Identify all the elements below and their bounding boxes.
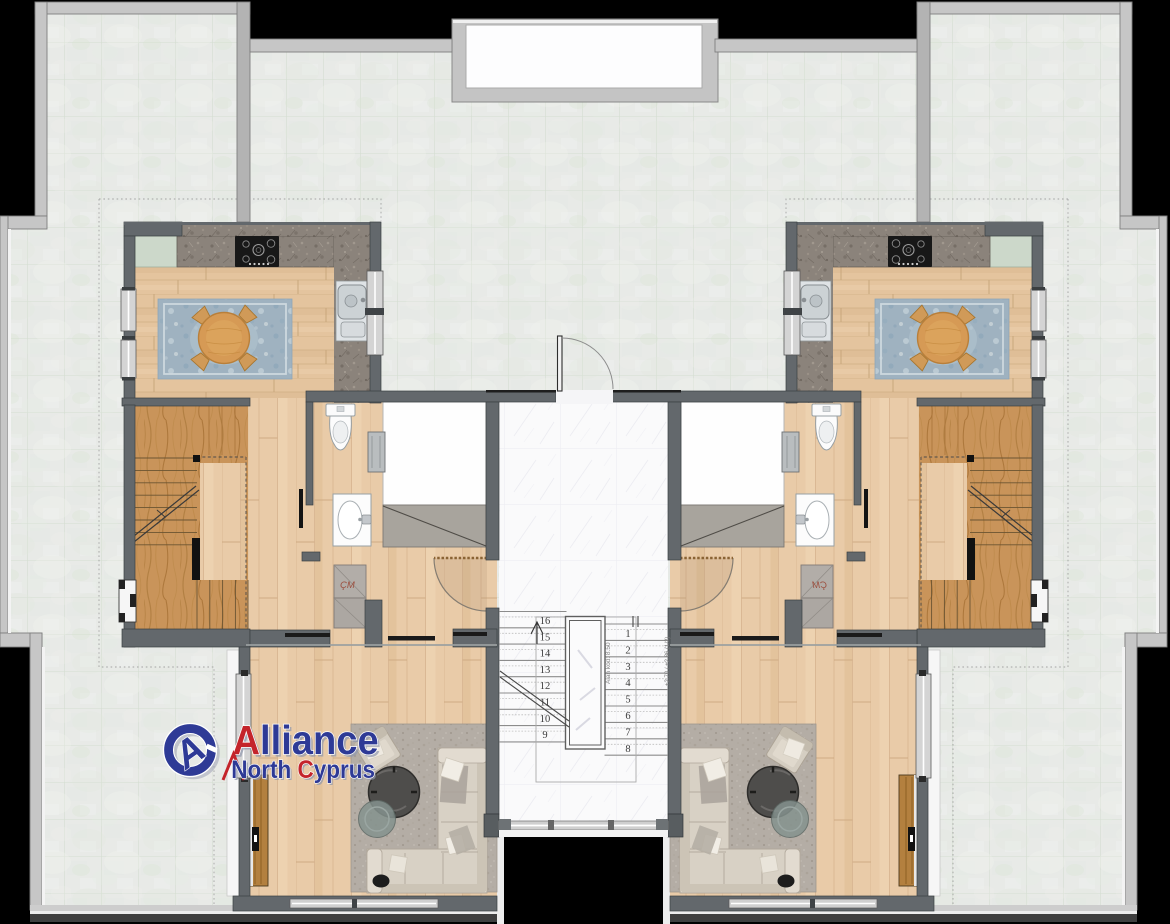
svg-text:16: 16 <box>540 616 551 627</box>
svg-text:1: 1 <box>625 629 630 640</box>
svg-text:11: 11 <box>540 698 550 709</box>
svg-text:14: 14 <box>540 649 551 660</box>
svg-text:15: 15 <box>540 632 551 643</box>
svg-text:+2.70 / +2.86 (1/2): +2.70 / +2.86 (1/2) <box>665 637 671 686</box>
svg-text:ÇM: ÇM <box>340 580 355 591</box>
svg-text:13: 13 <box>540 665 551 676</box>
svg-text:North Cyprus: North Cyprus <box>231 756 375 784</box>
svg-text:2: 2 <box>625 645 630 656</box>
svg-text:7: 7 <box>625 727 630 738</box>
svg-text:6: 6 <box>625 711 630 722</box>
svg-text:8: 8 <box>625 744 630 755</box>
svg-text:9: 9 <box>542 730 547 741</box>
svg-text:5: 5 <box>625 695 630 706</box>
svg-text:4: 4 <box>625 678 631 689</box>
svg-text:Alan kod: 8.50: Alan kod: 8.50 <box>605 642 612 684</box>
svg-text:3: 3 <box>625 662 630 673</box>
svg-text:10: 10 <box>540 714 551 725</box>
svg-text:12: 12 <box>540 681 551 692</box>
